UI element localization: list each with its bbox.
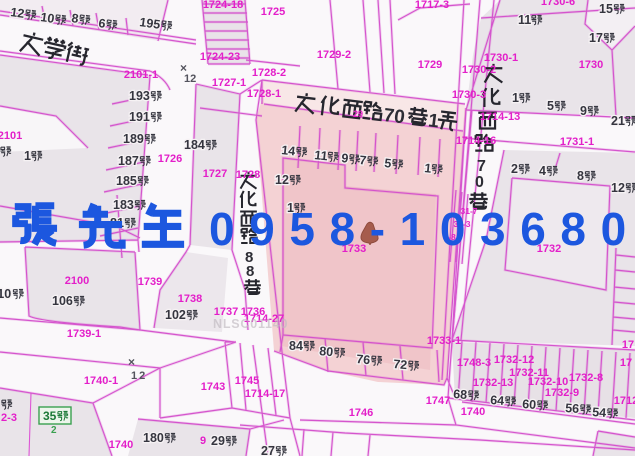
svg-text:187: 187	[118, 154, 139, 168]
svg-text:21: 21	[611, 114, 625, 128]
svg-text:4: 4	[539, 164, 546, 178]
svg-text:0958-103680: 0958-103680	[209, 203, 635, 255]
svg-text:1738: 1738	[178, 293, 202, 305]
svg-text:1730-3: 1730-3	[452, 89, 486, 101]
svg-text:2: 2	[51, 425, 57, 436]
svg-text:8: 8	[246, 263, 254, 280]
svg-text:1712: 1712	[614, 395, 635, 407]
svg-text:185: 185	[116, 174, 137, 188]
svg-text:80: 80	[319, 344, 334, 359]
svg-text:1740: 1740	[109, 439, 133, 451]
svg-text:183: 183	[113, 198, 134, 212]
svg-text:1730-2: 1730-2	[462, 64, 496, 76]
svg-text:84: 84	[289, 339, 303, 353]
svg-text:1745: 1745	[235, 375, 259, 387]
svg-text:1740-1: 1740-1	[84, 375, 118, 387]
svg-text:56: 56	[565, 401, 580, 416]
svg-text:1739: 1739	[138, 276, 162, 288]
svg-text:1714-17: 1714-17	[245, 388, 285, 400]
svg-text:1728: 1728	[236, 169, 260, 181]
svg-text:12: 12	[10, 5, 26, 21]
svg-text:1732-13: 1732-13	[473, 377, 513, 389]
svg-text:1: 1	[24, 149, 31, 163]
svg-text:2-3: 2-3	[1, 412, 17, 424]
svg-text:0: 0	[475, 174, 484, 191]
svg-text:106: 106	[52, 294, 73, 308]
svg-text:1727-1: 1727-1	[212, 77, 246, 89]
svg-text:193: 193	[129, 89, 150, 103]
svg-text:17: 17	[589, 31, 603, 45]
svg-text:15: 15	[599, 2, 613, 16]
svg-text:1717-3: 1717-3	[415, 0, 449, 11]
svg-text:1731-1: 1731-1	[560, 136, 594, 148]
svg-text:11: 11	[314, 148, 329, 163]
svg-text:1728-2: 1728-2	[252, 67, 286, 79]
svg-text:191: 191	[129, 110, 150, 124]
svg-text:17: 17	[622, 339, 634, 351]
svg-text:1: 1	[512, 91, 519, 105]
svg-text:184: 184	[184, 138, 205, 152]
svg-text:102: 102	[165, 308, 186, 322]
svg-text:72: 72	[393, 357, 408, 372]
svg-text:35: 35	[43, 409, 57, 423]
svg-text:1732-9: 1732-9	[545, 387, 579, 399]
svg-text:12: 12	[611, 181, 625, 195]
svg-text:5: 5	[547, 99, 554, 113]
svg-text:11: 11	[518, 13, 531, 27]
svg-text:1727: 1727	[203, 168, 227, 180]
svg-text:180: 180	[143, 431, 164, 445]
svg-text:1730: 1730	[579, 59, 603, 71]
svg-text:9: 9	[200, 435, 206, 447]
svg-text:1748-3: 1748-3	[457, 357, 491, 369]
svg-text:1730-6: 1730-6	[541, 0, 575, 8]
svg-text:70: 70	[382, 105, 406, 128]
svg-text:1747: 1747	[426, 395, 450, 407]
svg-text:110: 110	[0, 287, 11, 301]
svg-text:2101: 2101	[0, 130, 22, 142]
svg-text:68: 68	[453, 387, 468, 402]
svg-text:12: 12	[275, 173, 289, 187]
svg-text:7: 7	[477, 158, 486, 175]
svg-text:1724-23: 1724-23	[200, 51, 240, 63]
svg-text:1729: 1729	[418, 59, 442, 71]
svg-text:76: 76	[356, 352, 371, 367]
svg-text:10: 10	[40, 10, 56, 26]
svg-text:1733-1: 1733-1	[427, 335, 461, 347]
svg-text:2100: 2100	[65, 275, 89, 287]
svg-text:9: 9	[580, 104, 587, 118]
svg-text:12: 12	[184, 73, 196, 85]
svg-text:1725: 1725	[261, 6, 285, 18]
svg-text:1743: 1743	[201, 381, 225, 393]
svg-text:1728-1: 1728-1	[247, 88, 281, 100]
svg-text:1746: 1746	[349, 407, 373, 419]
svg-text:29: 29	[211, 434, 225, 448]
svg-text:1726: 1726	[158, 153, 182, 165]
svg-text:1714-16: 1714-16	[456, 135, 496, 147]
svg-text:60: 60	[522, 397, 537, 412]
svg-text:14: 14	[281, 143, 296, 158]
svg-text:1724-18: 1724-18	[203, 0, 243, 11]
svg-text:1729-2: 1729-2	[317, 49, 351, 61]
svg-text:195: 195	[139, 15, 162, 32]
svg-text:27: 27	[261, 444, 275, 456]
svg-text:54: 54	[592, 405, 607, 420]
svg-text:1739-1: 1739-1	[67, 328, 101, 340]
svg-text:1714-13: 1714-13	[480, 111, 520, 123]
svg-text:1732-8: 1732-8	[569, 372, 603, 384]
svg-text:189: 189	[123, 132, 144, 146]
svg-text:NLSC01140: NLSC01140	[213, 317, 288, 331]
svg-text:8: 8	[577, 169, 584, 183]
svg-text:×: ×	[128, 355, 135, 369]
svg-text:1732-12: 1732-12	[494, 354, 534, 366]
svg-text:17: 17	[620, 357, 632, 369]
svg-text:1740: 1740	[461, 406, 485, 418]
svg-text:2: 2	[511, 162, 518, 176]
svg-text:2101-1: 2101-1	[124, 69, 158, 81]
svg-text:64: 64	[490, 393, 505, 408]
svg-text:29: 29	[353, 109, 363, 119]
svg-text:1730-1: 1730-1	[484, 52, 518, 64]
svg-text:12: 12	[131, 370, 147, 382]
